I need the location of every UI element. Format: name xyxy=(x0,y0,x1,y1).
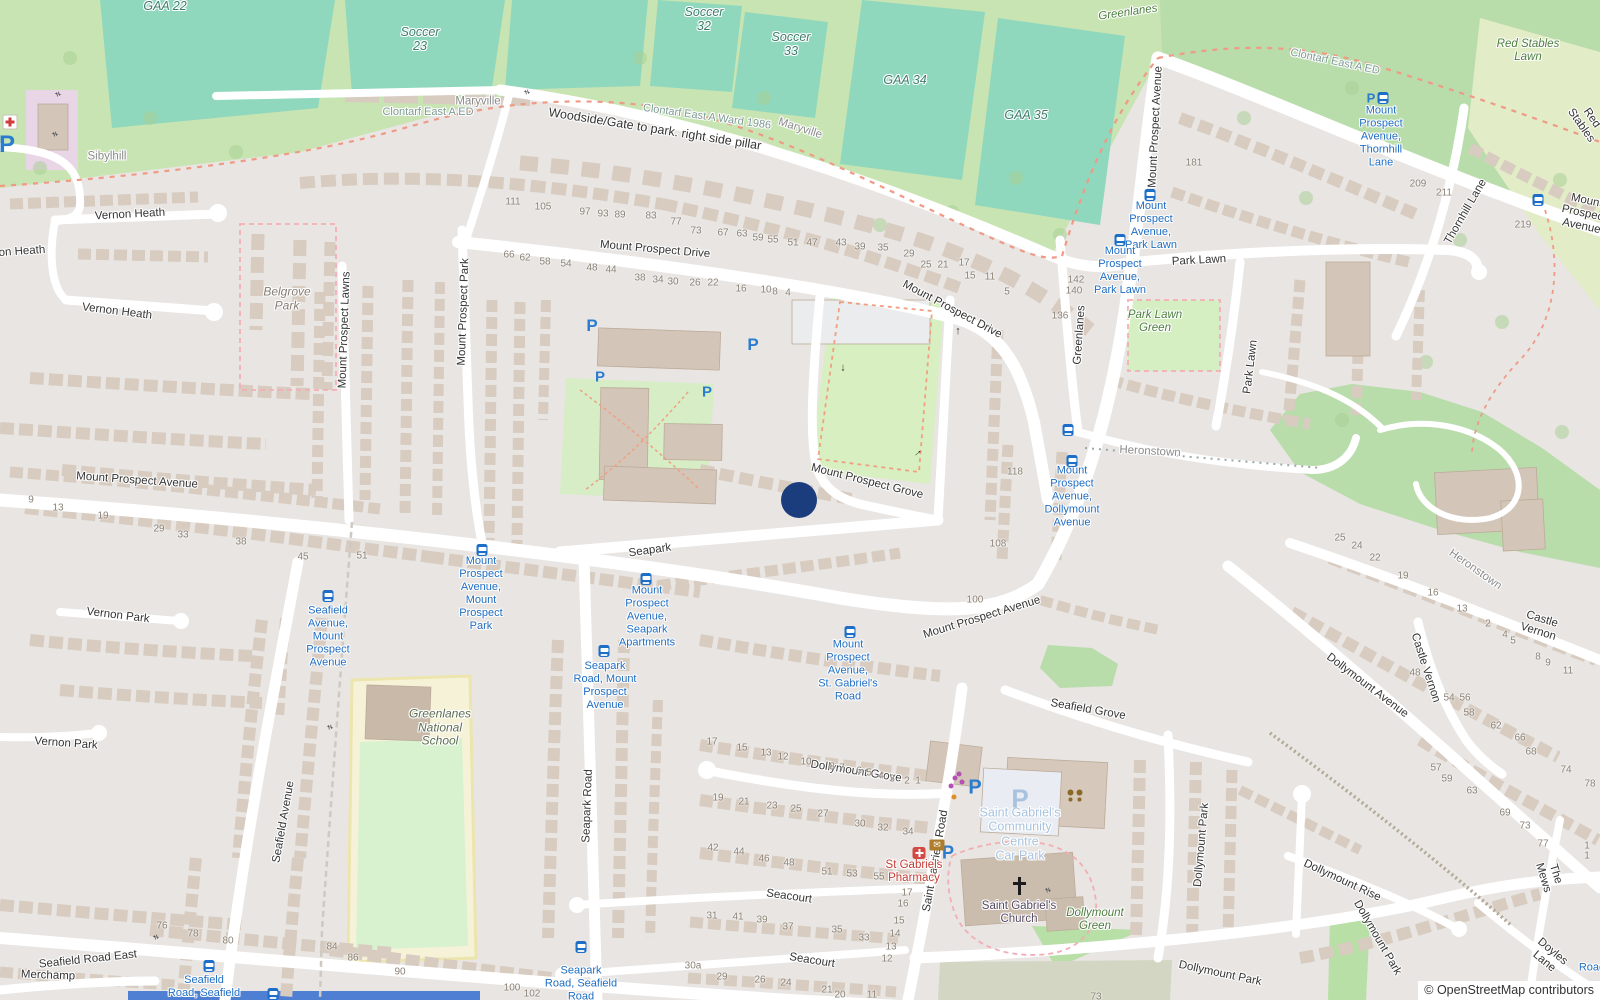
location-marker[interactable] xyxy=(781,482,817,518)
attribution[interactable]: © OpenStreetMap contributors xyxy=(1418,981,1600,1000)
openstreetmap-view[interactable]: Vernon HeathVernon Heathon HeathMount Pr… xyxy=(0,0,1600,1000)
